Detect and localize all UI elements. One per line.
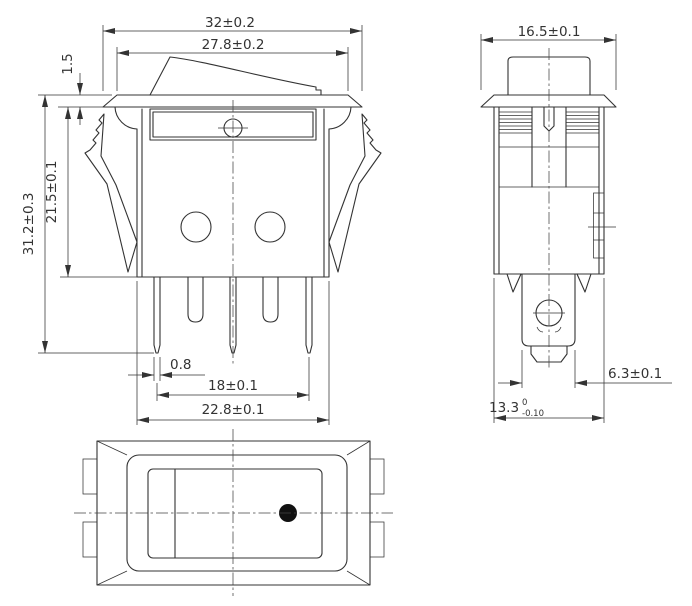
bottom-view: [74, 429, 393, 596]
dim-front-flange-thickness: 1.5: [38, 53, 112, 125]
dim-label-side-body-depth-tol-lower: -0.10: [522, 409, 544, 419]
front-view: 32±0.2 27.8±0.2 1.5 21.5±0.1 31.2±0.3: [21, 15, 381, 425]
vent-ribs-right: [566, 112, 599, 133]
mounting-clip-left: [85, 114, 137, 272]
dim-side-terminal-width: 6.3±0.1: [498, 350, 672, 388]
dim-front-flange-top-width: 27.8±0.2: [117, 37, 348, 91]
pin-right: [306, 277, 312, 353]
dim-label-front-flange-top-width: 27.8±0.2: [202, 37, 265, 53]
technical-drawing-canvas: 32±0.2 27.8±0.2 1.5 21.5±0.1 31.2±0.3: [0, 0, 692, 606]
bevel-line: [347, 571, 370, 585]
dim-front-overall-height: 31.2±0.3: [21, 95, 154, 353]
vent-ribs-left: [499, 112, 532, 133]
dim-front-pin-thickness: 0.8: [128, 357, 205, 381]
snap-tooth-detail: [588, 193, 616, 258]
mounting-clip-right: [329, 114, 381, 272]
dim-label-front-outer-pin-span: 18±0.1: [208, 378, 258, 394]
dim-label-front-flange-thickness: 1.5: [60, 53, 76, 74]
bevel-line: [97, 571, 127, 585]
dim-label-front-body-width: 22.8±0.1: [202, 402, 265, 418]
mounting-tab: [83, 522, 97, 557]
dim-label-front-overall-height: 31.2±0.3: [21, 193, 37, 256]
dim-label-side-flange-width: 16.5±0.1: [518, 24, 581, 40]
terminal-hole-mark-right: [555, 327, 561, 332]
drawing-sheet: 32±0.2 27.8±0.2 1.5 21.5±0.1 31.2±0.3: [0, 0, 692, 606]
bevel-line: [347, 441, 370, 455]
foot-hook-left: [507, 274, 521, 292]
dim-label-front-overall-width: 32±0.2: [205, 15, 255, 31]
contact-hole-right: [255, 212, 285, 242]
dim-label-front-body-height: 21.5±0.1: [44, 161, 60, 224]
dim-label-front-pin-thickness: 0.8: [170, 357, 191, 373]
side-flange: [481, 95, 616, 107]
pin-left: [154, 277, 160, 353]
terminal-hole-mark-left: [537, 327, 543, 332]
terminal-tab-right: [263, 277, 278, 322]
bevel-line: [97, 441, 127, 455]
terminal-boss: [522, 274, 575, 346]
dim-label-side-body-depth: 13.3: [489, 400, 519, 416]
foot-hook-right: [577, 274, 591, 292]
dim-label-side-terminal-width: 6.3±0.1: [608, 366, 662, 382]
mounting-tab: [370, 522, 384, 557]
flange-shoulder-right: [329, 107, 351, 129]
mounting-tab: [370, 459, 384, 494]
terminal-tab-left: [188, 277, 203, 322]
dim-label-side-body-depth-tol-upper: 0: [522, 398, 527, 408]
mounting-tab: [83, 459, 97, 494]
contact-hole-left: [181, 212, 211, 242]
flange-shoulder-left: [115, 107, 137, 129]
rocker-actuator-profile: [150, 57, 321, 95]
flange: [103, 95, 362, 107]
side-view: 16.5±0.1 6.3±0.1 13.3 0 -0.10: [481, 24, 672, 423]
